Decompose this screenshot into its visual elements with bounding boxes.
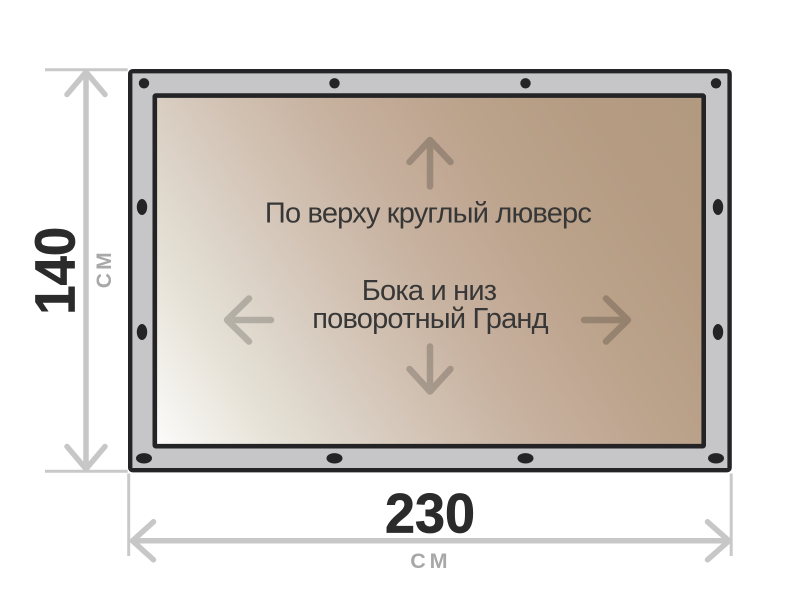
svg-text:СМ: СМ	[93, 249, 116, 288]
svg-text:поворотный Гранд: поворотный Гранд	[312, 303, 548, 335]
svg-text:230: 230	[385, 482, 475, 545]
svg-text:140: 140	[24, 227, 88, 315]
svg-text:СМ: СМ	[410, 549, 452, 573]
svg-text:По верху круглый люверс: По верху круглый люверс	[265, 198, 591, 230]
